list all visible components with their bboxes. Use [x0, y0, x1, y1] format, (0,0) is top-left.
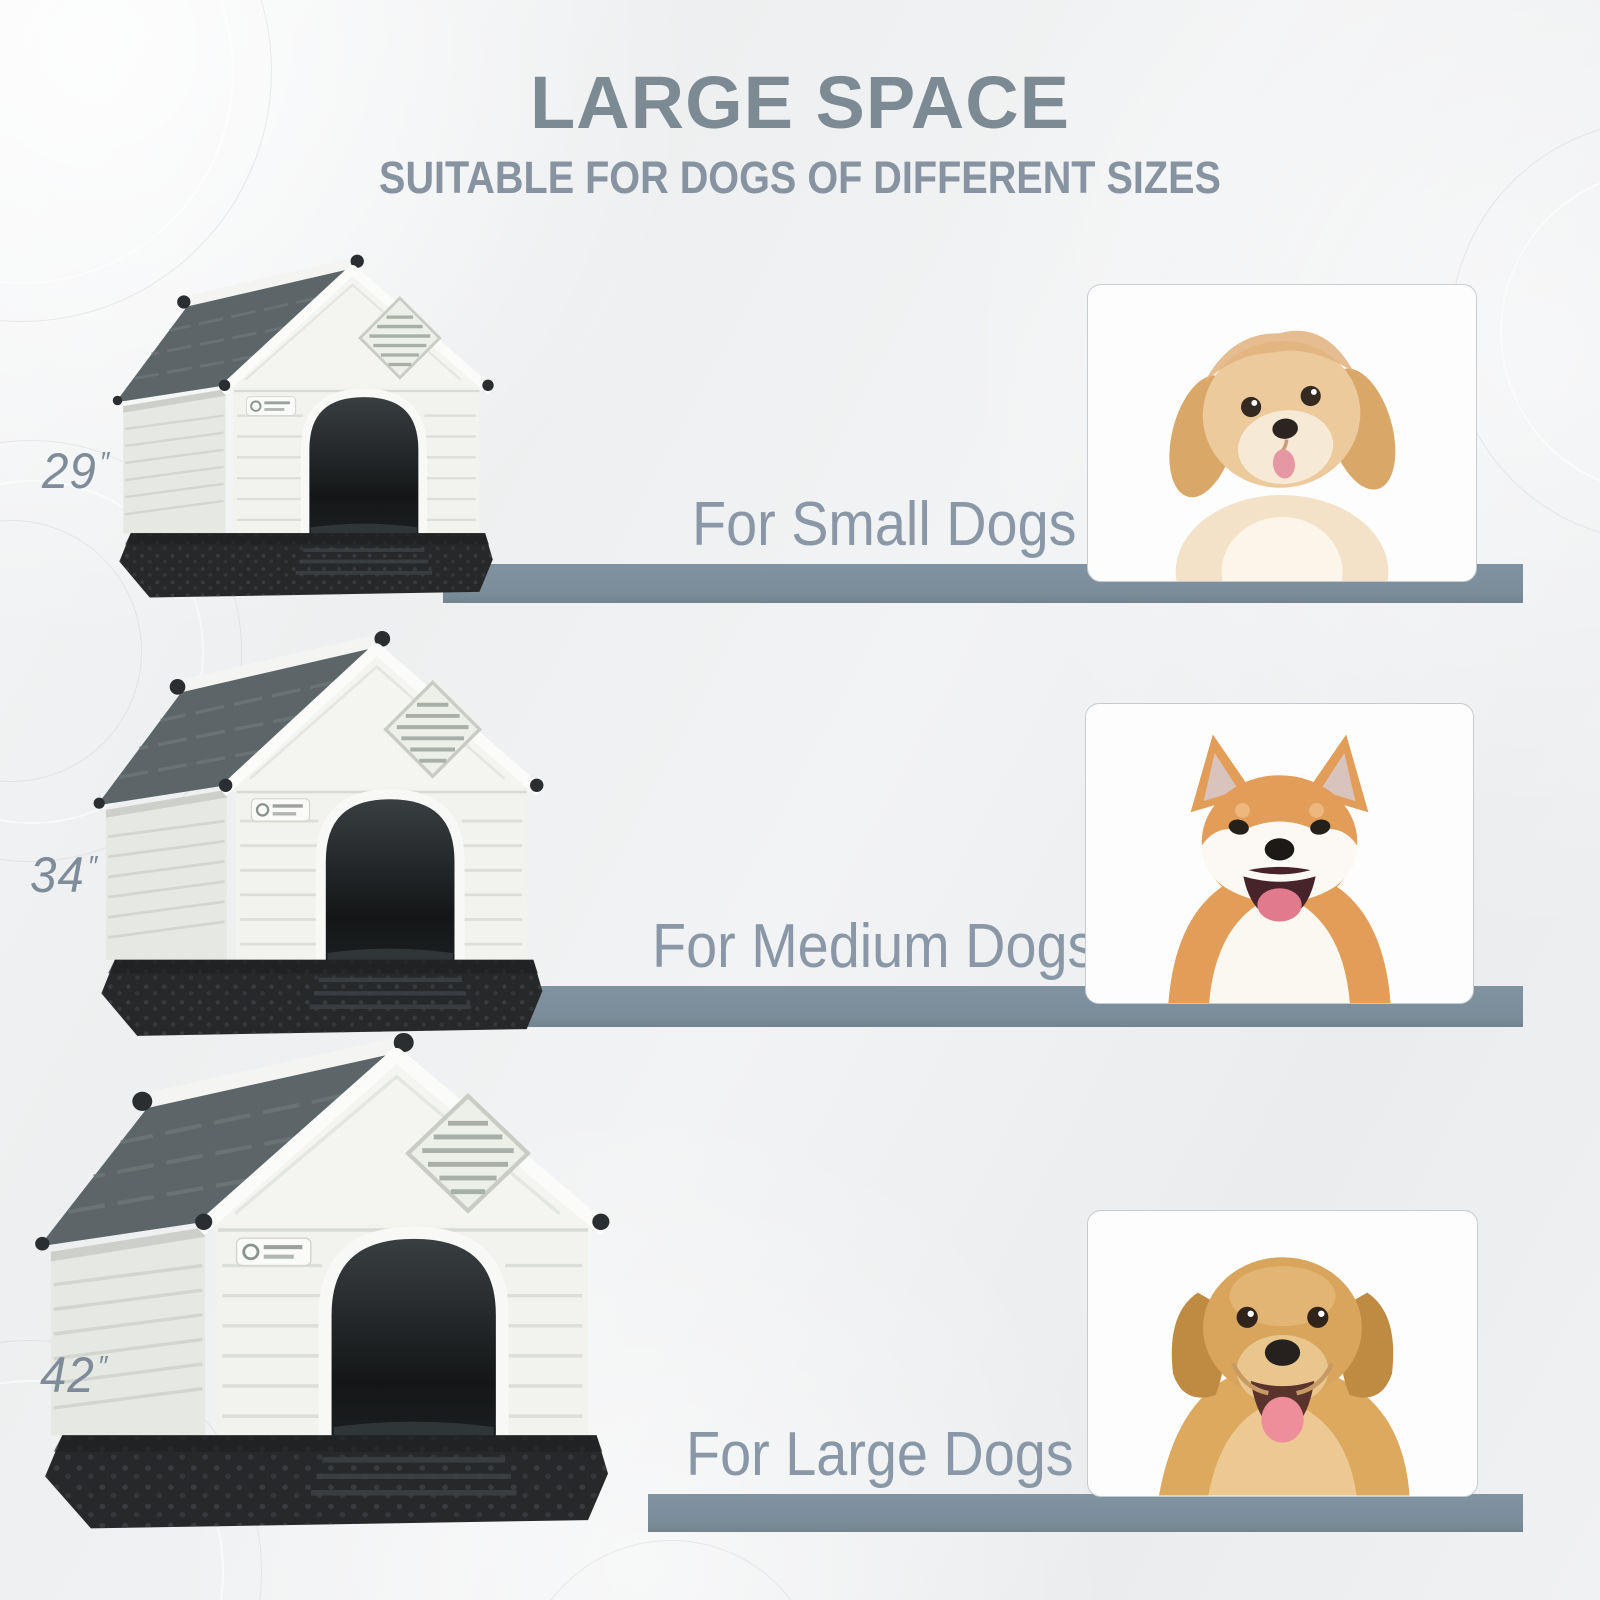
dog-house-42-inch [28, 1022, 628, 1542]
medium-dog-photo-card [1085, 703, 1474, 1004]
inch-mark: ″ [98, 1351, 109, 1383]
dog-size-caption-small: For Small Dogs [692, 494, 1076, 556]
dog-size-caption-medium: For Medium Dogs [652, 916, 1095, 978]
page-subtitle: SUITABLE FOR DOGS OF DIFFERENT SIZES [96, 155, 1504, 200]
inch-mark: ″ [100, 447, 111, 479]
dog-house-34-inch [88, 622, 558, 1047]
dog-house-29-inch [108, 247, 506, 607]
house-size-label-large: 42″ [40, 1350, 108, 1400]
size-value: 42 [40, 1347, 95, 1403]
small-dog-photo-card [1087, 284, 1477, 582]
inch-mark: ″ [88, 851, 99, 883]
house-size-label-medium: 34″ [30, 850, 98, 900]
product-infographic: LARGE SPACE SUITABLE FOR DOGS OF DIFFERE… [0, 0, 1600, 1600]
havanese-puppy-image [1088, 297, 1476, 581]
large-dog-photo-card [1087, 1210, 1478, 1497]
house-size-label-small: 29″ [42, 446, 110, 496]
shiba-inu-image [1086, 716, 1473, 1003]
size-value: 29 [42, 443, 97, 499]
size-value: 34 [30, 847, 85, 903]
page-title: LARGE SPACE [0, 66, 1600, 140]
dog-size-caption-large: For Large Dogs [686, 1424, 1074, 1486]
golden-retriever-image [1088, 1222, 1477, 1496]
row-divider-bar-large [648, 1494, 1523, 1532]
